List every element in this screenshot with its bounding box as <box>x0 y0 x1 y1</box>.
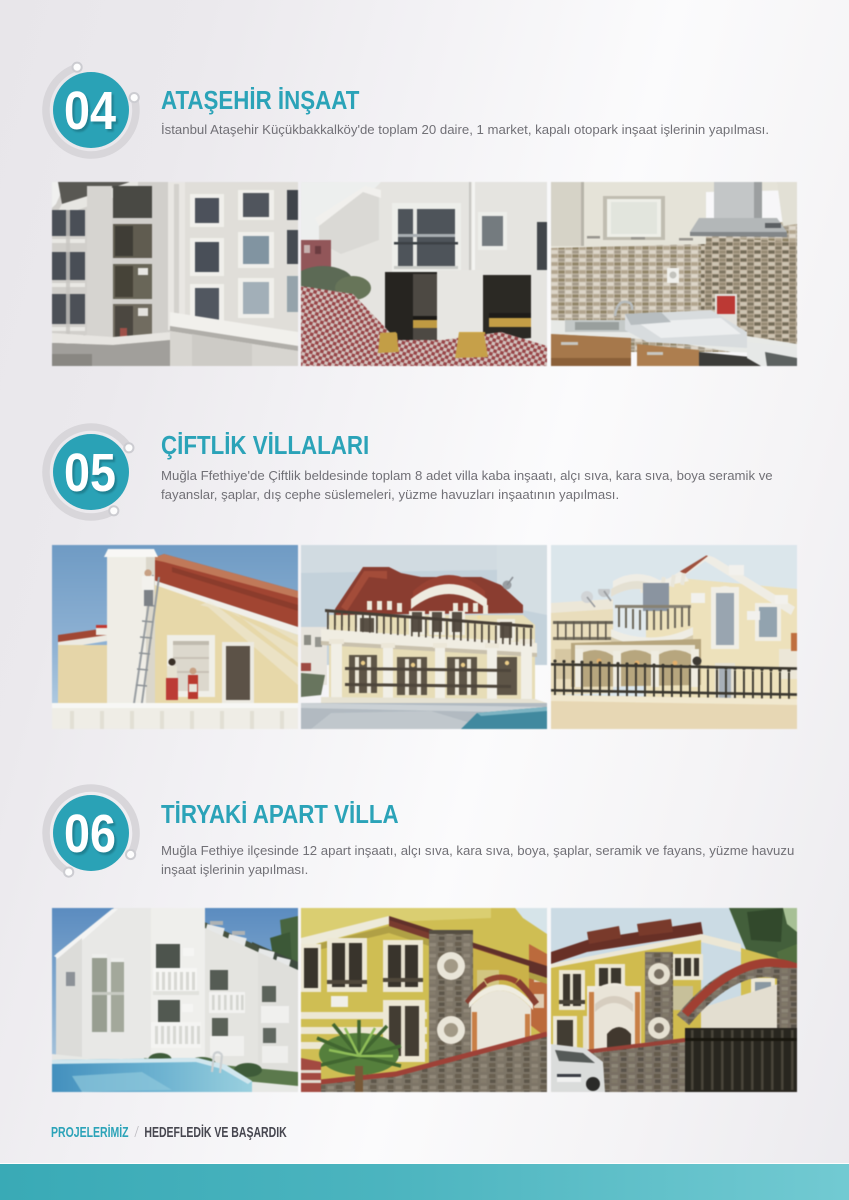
svg-text:06: 06 <box>64 804 116 864</box>
svg-text:04: 04 <box>64 81 116 141</box>
svg-text:05: 05 <box>64 443 116 503</box>
